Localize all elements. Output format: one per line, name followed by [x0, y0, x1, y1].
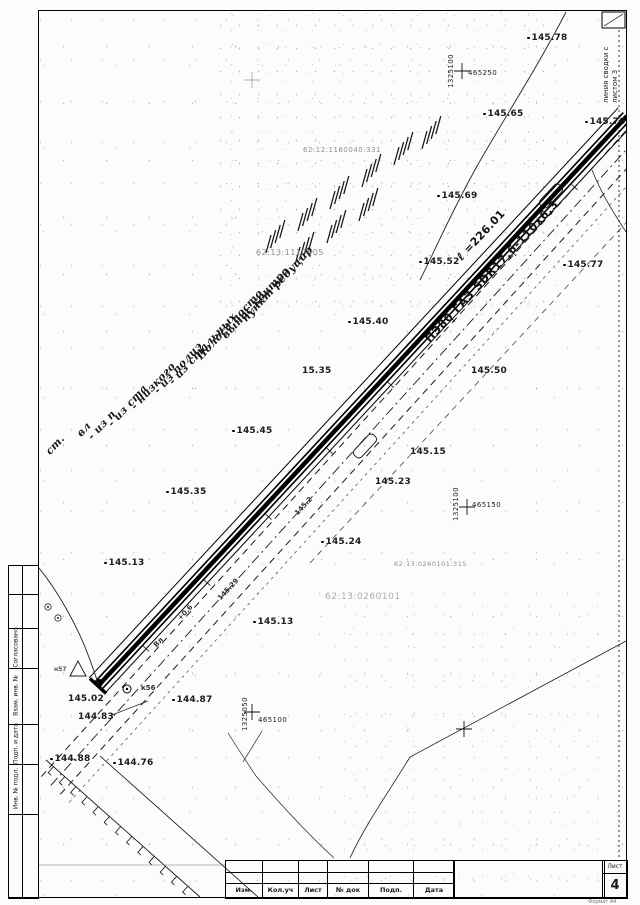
elevation-label: 145.15 [410, 447, 446, 457]
elevation-label: 144.76 [113, 758, 153, 768]
elevation-label: 144.88 [50, 754, 90, 764]
elevation-label: 145.23 [375, 477, 411, 487]
survey-point-dot [253, 621, 256, 624]
elevation-label: 145.78 [527, 33, 567, 43]
elevation-label: 145.45 [232, 426, 272, 436]
survey-point-dot [563, 264, 566, 267]
survey-point-dot [419, 261, 422, 264]
survey-point-dot [585, 121, 588, 124]
survey-point-dot [50, 758, 53, 761]
elevation-label: 145.69 [437, 191, 477, 201]
grid-y-label: 465100 [258, 716, 287, 724]
sheet-word: Лист [603, 861, 627, 874]
survey-point-dot [483, 113, 486, 116]
grid-x-label: 1325100 [447, 54, 455, 88]
point-label: н57 [54, 666, 67, 674]
elevation-label: 145.35 [166, 487, 206, 497]
survey-point-dot [232, 430, 235, 433]
match-line-label: линия сводки с листом 3 [602, 46, 619, 103]
survey-point-dot [104, 562, 107, 565]
elevation-label: 145.24 [321, 537, 361, 547]
survey-point-dot [321, 541, 324, 544]
elevation-label: 145.02 [68, 694, 104, 704]
cadastral-label: 62:12:1160040:331 [303, 146, 381, 154]
format-note: Формат А4 [588, 899, 616, 905]
elevation-label: 144.83 [78, 712, 114, 722]
grid-y-label: 465250 [468, 69, 497, 77]
titleblock-header-row: Изм. Кол.уч Лист № док Подп. Дата [226, 883, 454, 898]
map-area: 2Е У линия сводки с листом 3 145.78 145.… [39, 11, 626, 897]
elevation-label: 144.87 [172, 695, 212, 705]
strip-row-line [9, 594, 38, 595]
elevation-label: 145.65 [483, 109, 523, 119]
grid-crosses [244, 63, 475, 737]
hatch-clusters [266, 116, 441, 265]
elevation-label: 145.76 [585, 117, 625, 127]
well-label: к56 [141, 684, 156, 692]
cadastral-label: 62:13:0260101 [325, 593, 401, 601]
titleblock-revision-table: Изм. Кол.уч Лист № док Подп. Дата [225, 860, 455, 899]
elevation-label: 145.13 [253, 617, 293, 627]
cadastral-label: 62:13:0260101:315 [394, 560, 467, 568]
strip-divider [22, 566, 23, 898]
titleblock-row [226, 861, 454, 872]
survey-point-dot [166, 491, 169, 494]
elevation-label: 145.52 [419, 257, 459, 267]
titleblock-col-ndok: № док [327, 884, 368, 898]
titleblock-doc-cell [453, 860, 605, 899]
survey-point-dot [172, 699, 175, 702]
survey-point-dot [437, 195, 440, 198]
pipeline-band [89, 108, 626, 693]
sheet-number: 4 [603, 874, 627, 898]
grid-x-label: 1325100 [452, 487, 460, 521]
survey-point-dot [348, 321, 351, 324]
titleblock-col-list: Лист [298, 884, 327, 898]
titleblock-col-data: Дата [413, 884, 454, 898]
elevation-label: 145.40 [348, 317, 388, 327]
frame-right [626, 10, 627, 898]
titleblock-col-izm: Изм. [226, 884, 262, 898]
match-line-label-1: линия сводки с [602, 46, 611, 103]
side-strip: Согласовано Взам. инв. № Подп. и дата Ин… [8, 565, 39, 899]
elevation-label: 15.35 [302, 366, 331, 376]
match-line-label-2: листом 3 [611, 46, 620, 103]
strip-label-inventory: Инв. № подл. [11, 761, 22, 817]
grid-x-label: 1325050 [241, 697, 249, 731]
titleblock-sheet-cell: Лист 4 [602, 860, 628, 899]
grid-y-label: 465150 [472, 501, 501, 509]
point-symbols [39, 604, 226, 865]
elevation-label: 145.50 [471, 366, 507, 376]
frame-left [38, 10, 39, 566]
titleblock-col-koluch: Кол.уч [262, 884, 298, 898]
frame-top [38, 10, 627, 11]
survey-point-dot [527, 37, 530, 40]
titleblock-col-podp: Подп. [368, 884, 413, 898]
elevation-label: 145.13 [104, 558, 144, 568]
elevation-label: 145.77 [563, 260, 603, 270]
drawing-sheet: 2Е У линия сводки с листом 3 145.78 145.… [0, 0, 640, 905]
titleblock-row [226, 872, 454, 883]
survey-point-dot [113, 762, 116, 765]
